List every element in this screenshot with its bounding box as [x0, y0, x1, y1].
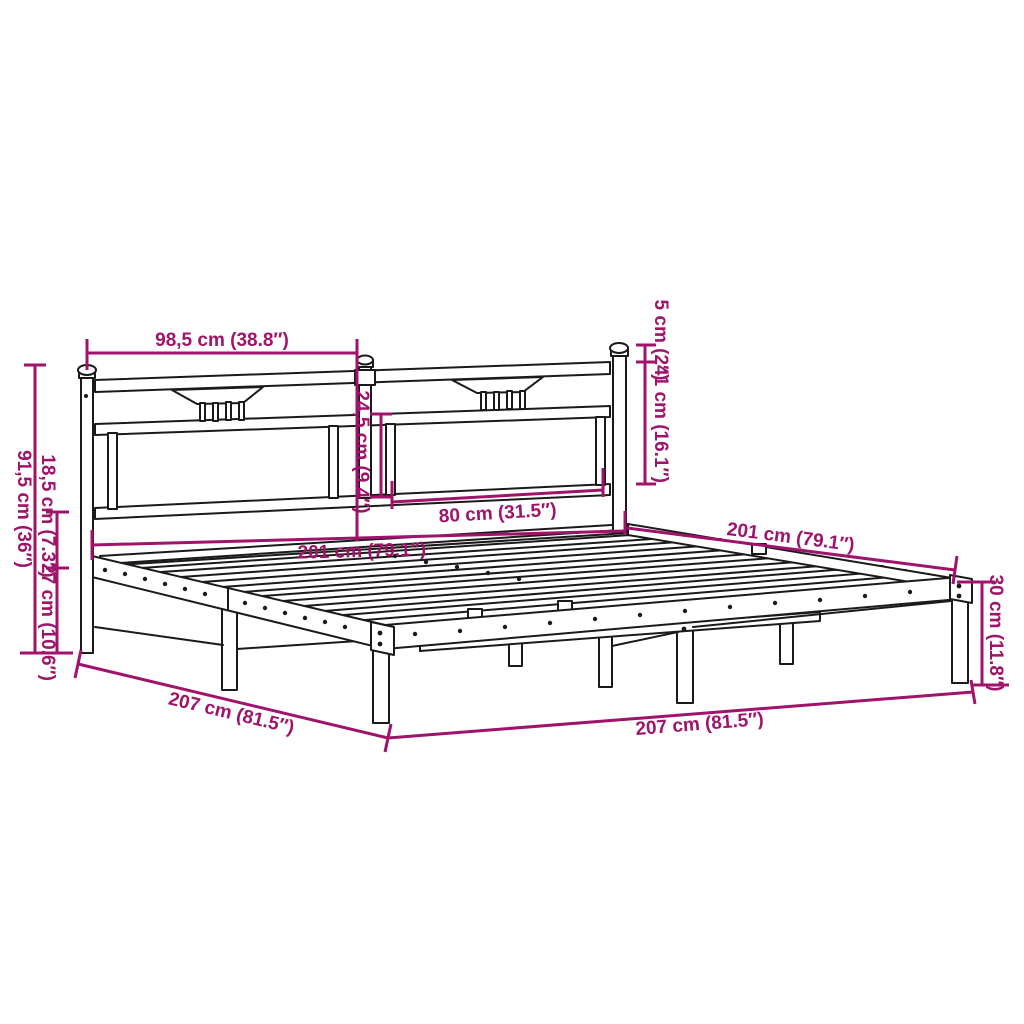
dim-label: 98,5 cm (38.8″): [155, 330, 289, 351]
bed-dimension-diagram: 98,5 cm (38.8″) 91,5 cm (36″) 18,5 cm (7…: [0, 0, 1024, 1024]
side-mid-leg: [222, 606, 237, 690]
post-cap: [357, 356, 373, 365]
diagram-canvas: 98,5 cm (38.8″) 91,5 cm (36″) 18,5 cm (7…: [0, 0, 1024, 1024]
front-left-leg: [373, 650, 389, 723]
foot-right-leg: [952, 596, 968, 683]
brace: [95, 627, 223, 645]
dim-label: 207 cm (81.5″): [166, 689, 296, 739]
dim-lower-rail-gap: 18,5 cm (7.3″) 27 cm (10.6″): [37, 454, 69, 681]
dim-label: 201 cm (79.1″): [297, 539, 426, 563]
panel-stile: [108, 433, 117, 509]
bracket-trapezoid: [452, 377, 543, 393]
headboard-left-post: [81, 376, 93, 653]
dim-label: 24,5 cm (9.4″): [351, 390, 372, 513]
bracket-trapezoid: [172, 387, 263, 404]
panel-stile: [329, 426, 338, 498]
dim-post-cap-gap: 5 cm (2″) 41 cm (16.1″): [636, 300, 671, 484]
front-left-bracket: [371, 622, 394, 655]
dim-label: 30 cm (11.8″): [985, 575, 1006, 692]
post-cap: [610, 343, 628, 353]
bracket-bars: [481, 391, 525, 410]
headboard-right-post: [613, 354, 626, 533]
dim-label: 91,5 cm (36″): [13, 450, 34, 568]
dim-label: 41 cm (16.1″): [650, 365, 671, 483]
dim-label: 18,5 cm (7.3″): [37, 454, 58, 577]
dim-label: 27 cm (10.6″): [37, 563, 58, 681]
dim-label: 207 cm (81.5″): [635, 709, 765, 740]
dim-label: 80 cm (31.5″): [438, 500, 557, 528]
